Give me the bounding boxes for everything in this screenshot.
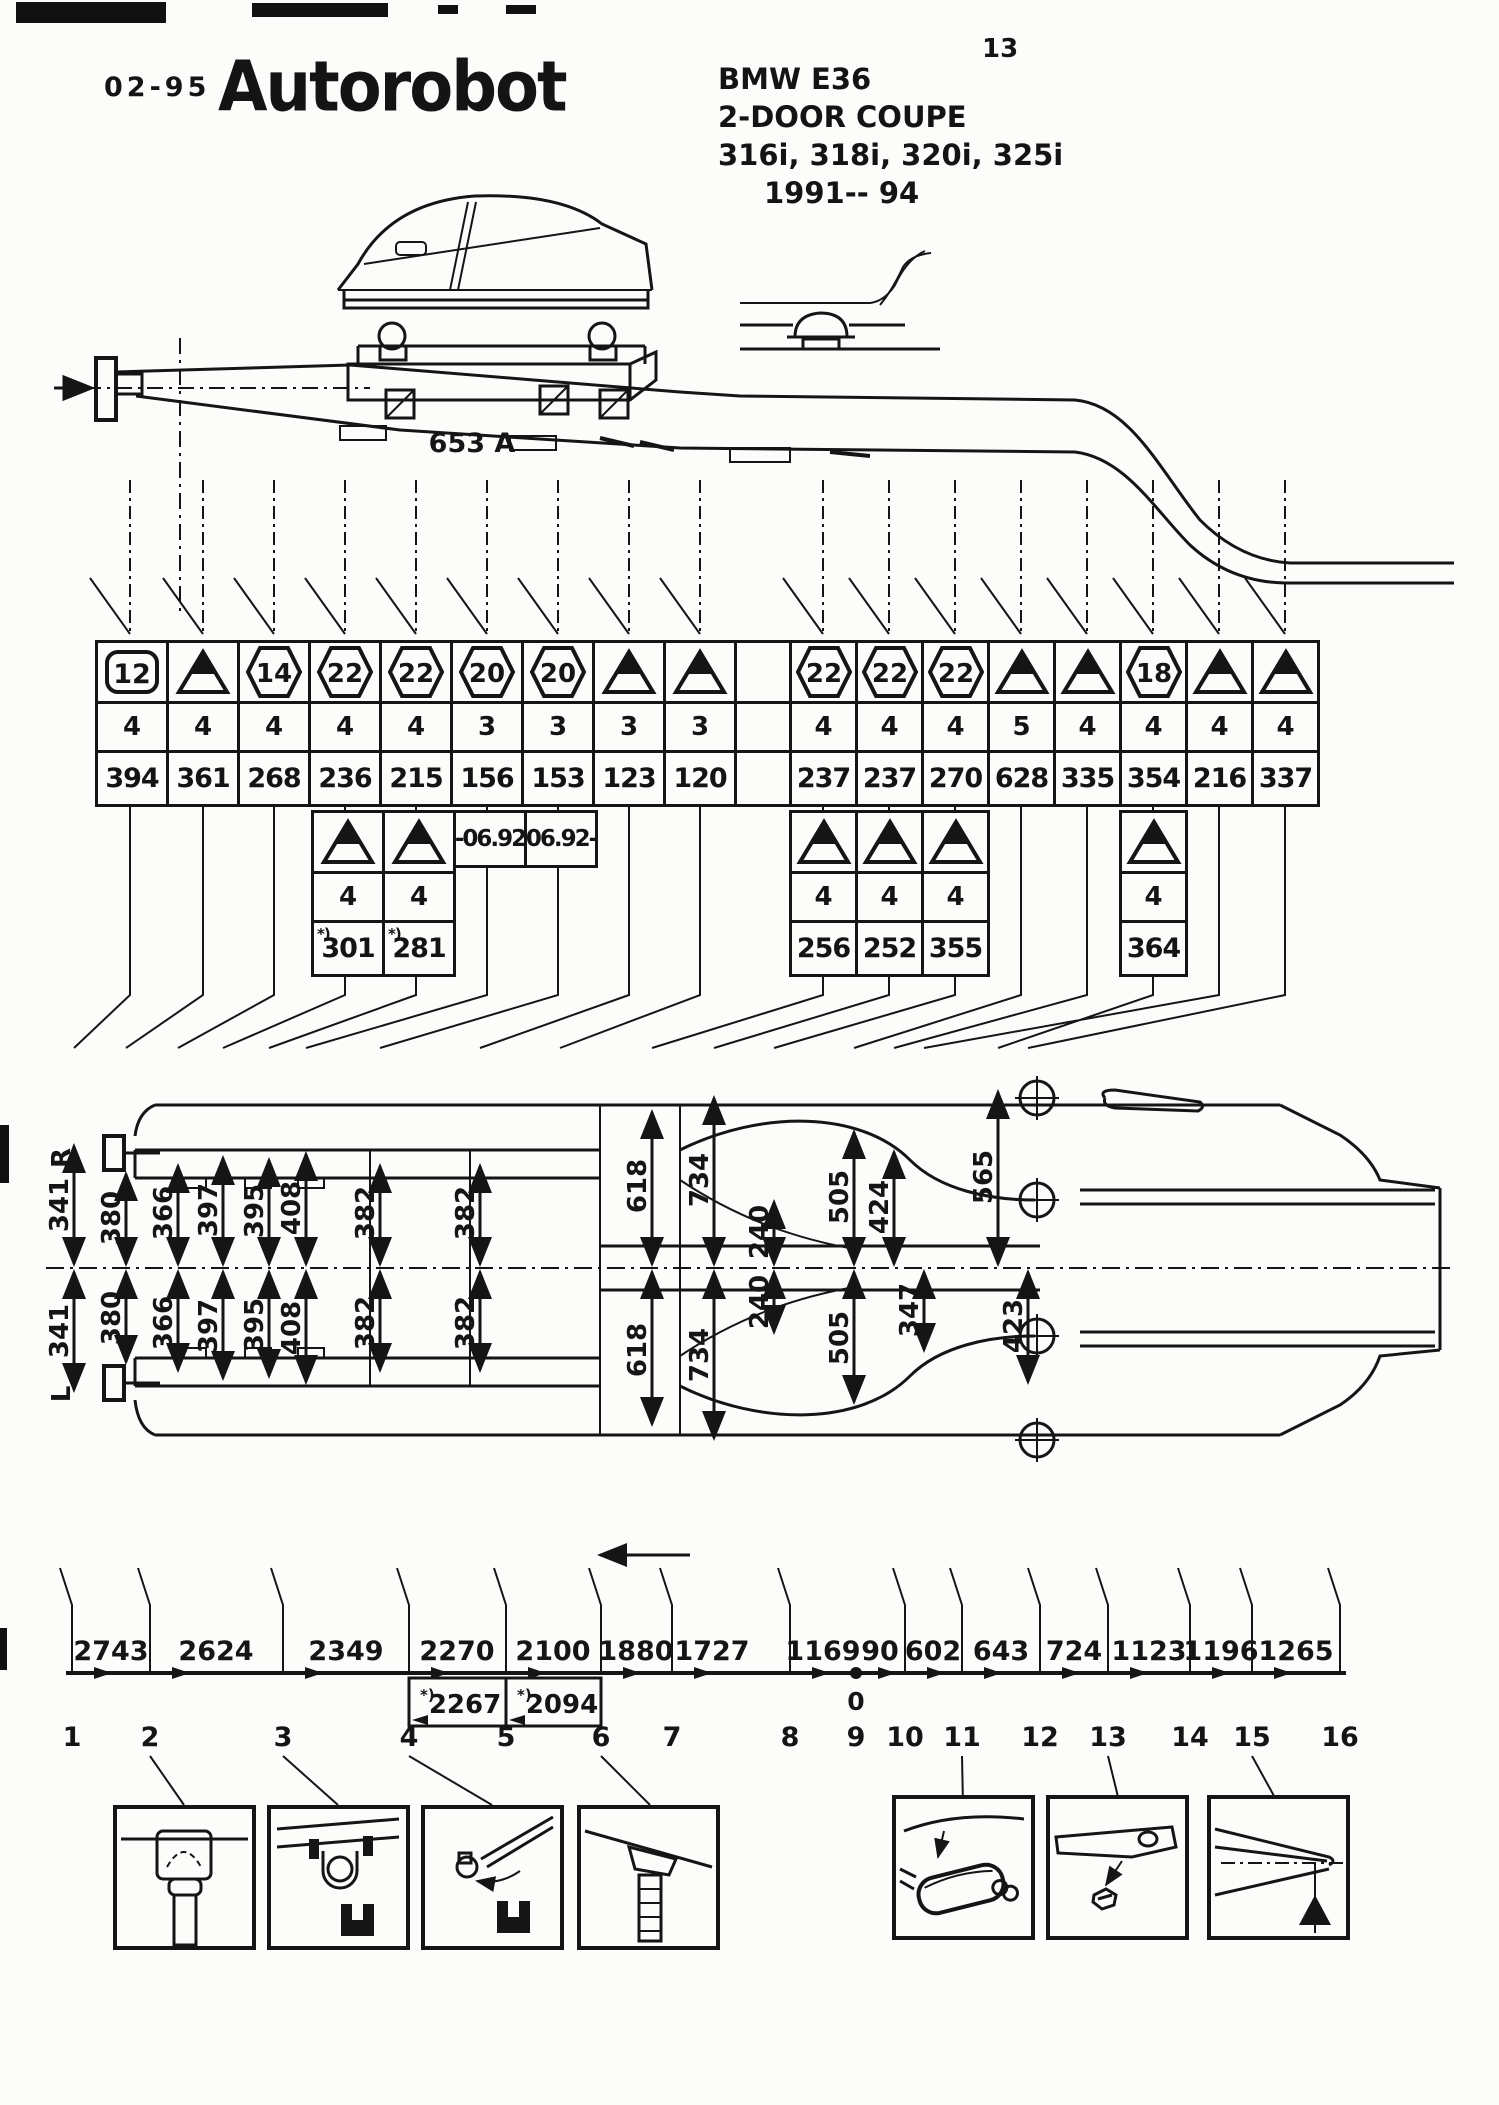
scan-artifact [16,2,166,23]
symbol-hex-18: 18 [1119,640,1188,704]
hex-badge: 18 [1135,659,1171,689]
exhaust-muffler-sketch [896,1799,1031,1936]
station-number: 6 [592,1722,611,1753]
value-cell: 237 [855,750,924,807]
segment-value: 643 [973,1636,1029,1667]
dim-label: 380 [97,1291,127,1345]
car-body-outline [338,196,652,308]
station-number: 15 [1233,1722,1271,1753]
segment-values: 2743 2624 2349 2270 2100 1880 1727 1169 … [73,1636,1333,1667]
value-cell: 237 [789,750,858,807]
measure-column-5: 22 4 215 [379,640,453,807]
symbol-triangle [1185,640,1254,704]
symbol-triangle [855,810,924,874]
detail-box-exhaust [892,1795,1035,1940]
value-cell: 394 [95,750,169,807]
level-cell: 4 [1119,871,1188,923]
value-cell: 252 [855,920,924,977]
scan-artifact [438,5,458,14]
hex-badge: 22 [805,659,841,689]
sill-clamp-sketch [117,1809,252,1946]
station-number: 14 [1171,1722,1209,1753]
symbol-triangle [1251,640,1320,704]
hex-badge: 22 [937,659,973,689]
empty-column [734,640,792,807]
dim-label: 408 [277,1301,307,1355]
dim-label: 382 [451,1186,481,1240]
empty-cell [734,750,792,807]
hex-badge: 22 [327,659,363,689]
hex-badge: 22 [871,659,907,689]
value-cell: 120 [663,750,737,807]
measure-column-9: 3 120 [663,640,737,807]
measure-column-12: 22 4 270 [921,640,990,807]
measure-column-6: 20 3 156 [450,640,524,807]
value-cell: 268 [237,750,311,807]
dim-label: 424 [865,1180,895,1234]
autorobot-logo: Autorobot [218,48,566,128]
level-cell: 3 [450,701,524,753]
level-cell: 4 [379,701,453,753]
segment-value: 1265 [1258,1636,1333,1667]
dim-label: 366 [149,1296,179,1350]
column-leader-dashes [130,480,1285,636]
measure-column-17: 4 337 [1251,640,1320,807]
measure-column-15: 18 4 354 [1119,640,1188,807]
alt-length-boxes: *) 2267 *) 2094 [409,1678,601,1726]
measure-column-10: 22 4 237 [789,640,858,807]
level-cell: 4 [1251,701,1320,753]
dim-label: 341 [45,1178,75,1232]
table-to-plan-leaders [40,805,1460,1050]
hex-badge: 20 [540,659,576,689]
value-cell: *) 281 [382,920,456,977]
scan-artifact [0,1628,7,1670]
segment-value: 1123 [1111,1636,1186,1667]
bracket-sketch [1050,1799,1185,1936]
dim-label: 382 [351,1186,381,1240]
station-number: 10 [886,1722,924,1753]
measure-column-13: 5 628 [987,640,1056,807]
level-cell: 4 [311,871,385,923]
level-cell: 4 [855,871,924,923]
level-cell: 4 [789,701,858,753]
segment-value: 724 [1046,1636,1102,1667]
detail-box-sill-clamp [113,1805,256,1950]
station-number: 1 [63,1722,82,1753]
segment-value: 2270 [419,1636,494,1667]
measure-column-14: 4 335 [1053,640,1122,807]
value-cell: 354 [1119,750,1188,807]
level-cell: 4 [921,871,990,923]
value-cell: 361 [166,750,240,807]
datasheet-page: 02-95 Autorobot 13 BMW E36 2-DOOR COUPE … [0,0,1499,2105]
date-note: 06.92- [524,810,598,868]
footnote-mark: *) [388,925,401,943]
alt-length-value: 2267 [429,1690,501,1720]
symbol-triangle [921,810,990,874]
dim-label: 382 [351,1296,381,1350]
symbol-triangle [1053,640,1122,704]
hex-badge: 20 [469,659,505,689]
alt-column-252: 4 252 [855,810,924,977]
dim-label: 505 [825,1311,855,1365]
value-cell: 153 [521,750,595,807]
value-cell: 215 [379,750,453,807]
date-note: -06.92 [453,810,527,868]
symbol-hex-20: 20 [521,640,595,704]
level-cell: 3 [663,701,737,753]
station-numbers: 1 2 3 4 5 6 7 8 9 10 11 12 13 14 15 16 [63,1722,1359,1753]
segment-value: 90 [861,1636,899,1667]
dim-label: 618 [623,1323,653,1377]
length-scale: 2743 2624 2349 2270 2100 1880 1727 1169 … [40,1560,1460,1810]
vehicle-body: 2-DOOR COUPE [718,98,1063,136]
level-cell: 4 [855,701,924,753]
symbol-triangle [592,640,666,704]
segment-value: 2624 [178,1636,253,1667]
empty-cell [734,701,792,753]
value-cell: 216 [1185,750,1254,807]
dim-label: 734 [685,1153,715,1207]
level-cell: 4 [1053,701,1122,753]
station-number: 11 [943,1722,981,1753]
symbol-hex-22: 22 [379,640,453,704]
control-arm-sketch [425,1809,560,1946]
symbol-triangle [166,640,240,704]
dim-label: 734 [685,1328,715,1382]
segment-value: 1880 [598,1636,673,1667]
station-number: 16 [1321,1722,1359,1753]
measure-column-7: 20 3 153 [521,640,595,807]
station-number: 4 [400,1722,419,1753]
column-leader-diagonals [90,578,1285,634]
sub-column-364: 4 364 [1119,810,1188,977]
symbol-hex-22: 22 [789,640,858,704]
scan-artifact [252,3,388,17]
dim-label: 397 [194,1183,224,1237]
level-cell: 4 [95,701,169,753]
detail-box-sill-support [577,1805,720,1950]
station-number: 9 [847,1722,866,1753]
vehicle-years: 1991-- 94 [718,174,1063,212]
dim-label: 240 [745,1205,775,1259]
detail-box-subframe-mount [267,1805,410,1950]
alt-column-256: 4 256 [789,810,858,977]
level-cell: 4 [789,871,858,923]
symbol-triangle [987,640,1056,704]
date-note-column: 06.92- [524,810,598,977]
segment-value: 2100 [515,1636,590,1667]
alt-column-301: 4 *) 301 [311,810,385,977]
segment-value: 1727 [674,1636,749,1667]
revision-date: 02-95 [104,72,210,103]
level-cell: 4 [237,701,311,753]
dim-label: 382 [451,1296,481,1350]
dim-label: 341 [45,1304,75,1358]
symbol-triangle [311,810,385,874]
symbol-hex-14: 14 [237,640,311,704]
dim-label: 565 [969,1150,999,1204]
symbol-triangle [789,810,858,874]
measurement-table: 12 4 394 4 361 14 4 268 22 [95,640,1320,807]
dim-label: 347 [895,1283,925,1337]
symbol-hex-20: 20 [450,640,524,704]
station-number: 2 [141,1722,160,1753]
segment-value: 602 [905,1636,961,1667]
station-number: 7 [663,1722,682,1753]
value-cell: 364 [1119,920,1188,977]
symbol-box-12: 12 [95,640,169,704]
value-cell: 236 [308,750,382,807]
dim-label: 618 [623,1159,653,1213]
value-cell: 270 [921,750,990,807]
alt-column-355: 4 355 [921,810,990,977]
value-cell: 337 [1251,750,1320,807]
value-cell: 355 [921,920,990,977]
measure-column-4: 22 4 236 [308,640,382,807]
level-cell: 4 [1119,701,1188,753]
station-number: 13 [1089,1722,1127,1753]
symbol-triangle [382,810,456,874]
profile-outline [54,338,1454,614]
measure-column-2: 4 361 [166,640,240,807]
empty-cell [734,640,792,704]
alt-length-value: 2094 [526,1690,598,1720]
zero-label: 0 [847,1687,864,1716]
level-cell: 4 [1185,701,1254,753]
level-cell: 4 [921,701,990,753]
detail-box-rail-datum [1207,1795,1350,1940]
value-cell: *) 301 [311,920,385,977]
symbol-hex-22: 22 [308,640,382,704]
segment-value: 2743 [73,1636,148,1667]
station-number: 12 [1021,1722,1059,1753]
dim-label: 408 [277,1181,307,1235]
segment-value: 1169 [785,1636,860,1667]
detail-box-control-arm [421,1805,564,1950]
hex-badge: 14 [256,659,292,689]
underbody-plan-view: R L 341 341 380 380 366 366 397 397 395 … [40,1050,1460,1570]
segment-value: 1196 [1183,1636,1258,1667]
symbol-hex-22: 22 [921,640,990,704]
value-cell: 123 [592,750,666,807]
dim-label: 240 [745,1275,775,1329]
measure-column-3: 14 4 268 [237,640,311,807]
measure-column-1: 12 4 394 [95,640,169,807]
station-number: 5 [497,1722,516,1753]
measure-column-16: 4 216 [1185,640,1254,807]
station-number: 8 [781,1722,800,1753]
sub-table-right: 4 256 4 252 4 355 [789,810,990,977]
dim-label: 380 [97,1191,127,1245]
measure-column-8: 3 123 [592,640,666,807]
dim-label: 395 [240,1298,270,1352]
sill-support-sketch [581,1809,716,1946]
value-cell: 156 [450,750,524,807]
footnote-mark: *) [317,925,330,943]
station-number: 3 [274,1722,293,1753]
value-cell: 256 [789,920,858,977]
detail-box-bracket [1046,1795,1189,1940]
date-note-column: -06.92 [453,810,527,977]
level-cell: 3 [592,701,666,753]
sub-table-left: 4 *) 301 4 *) 281 -06.92 06.92- [311,810,598,977]
zero-datum-dot [850,1667,862,1679]
dim-label: 505 [825,1170,855,1224]
hex-badge: 22 [398,659,434,689]
vehicle-info: BMW E36 2-DOOR COUPE 316i, 318i, 320i, 3… [718,60,1063,212]
symbol-hex-22: 22 [855,640,924,704]
subframe-mount-sketch [271,1809,406,1946]
vehicle-variants: 316i, 318i, 320i, 325i [718,136,1063,174]
segment-value: 2349 [308,1636,383,1667]
underbody-profile-sketch [40,330,1460,640]
box-badge: 12 [113,659,151,690]
level-cell: 4 [308,701,382,753]
dim-label: 366 [149,1186,179,1240]
rail-datum-sketch [1211,1799,1346,1936]
level-cell: 3 [521,701,595,753]
vehicle-model: BMW E36 [718,60,1063,98]
dim-label: 395 [240,1184,270,1238]
value-cell: 335 [1053,750,1122,807]
symbol-triangle [1119,810,1188,874]
measure-column-11: 22 4 237 [855,640,924,807]
level-cell: 5 [987,701,1056,753]
level-cell: 4 [382,871,456,923]
alt-column-281: 4 *) 281 [382,810,456,977]
symbol-triangle [663,640,737,704]
dim-label: 397 [194,1299,224,1353]
scan-artifact [0,1125,9,1183]
scan-artifact [506,5,536,14]
value-cell: 628 [987,750,1056,807]
level-cell: 4 [166,701,240,753]
dim-label: 423 [999,1299,1029,1353]
